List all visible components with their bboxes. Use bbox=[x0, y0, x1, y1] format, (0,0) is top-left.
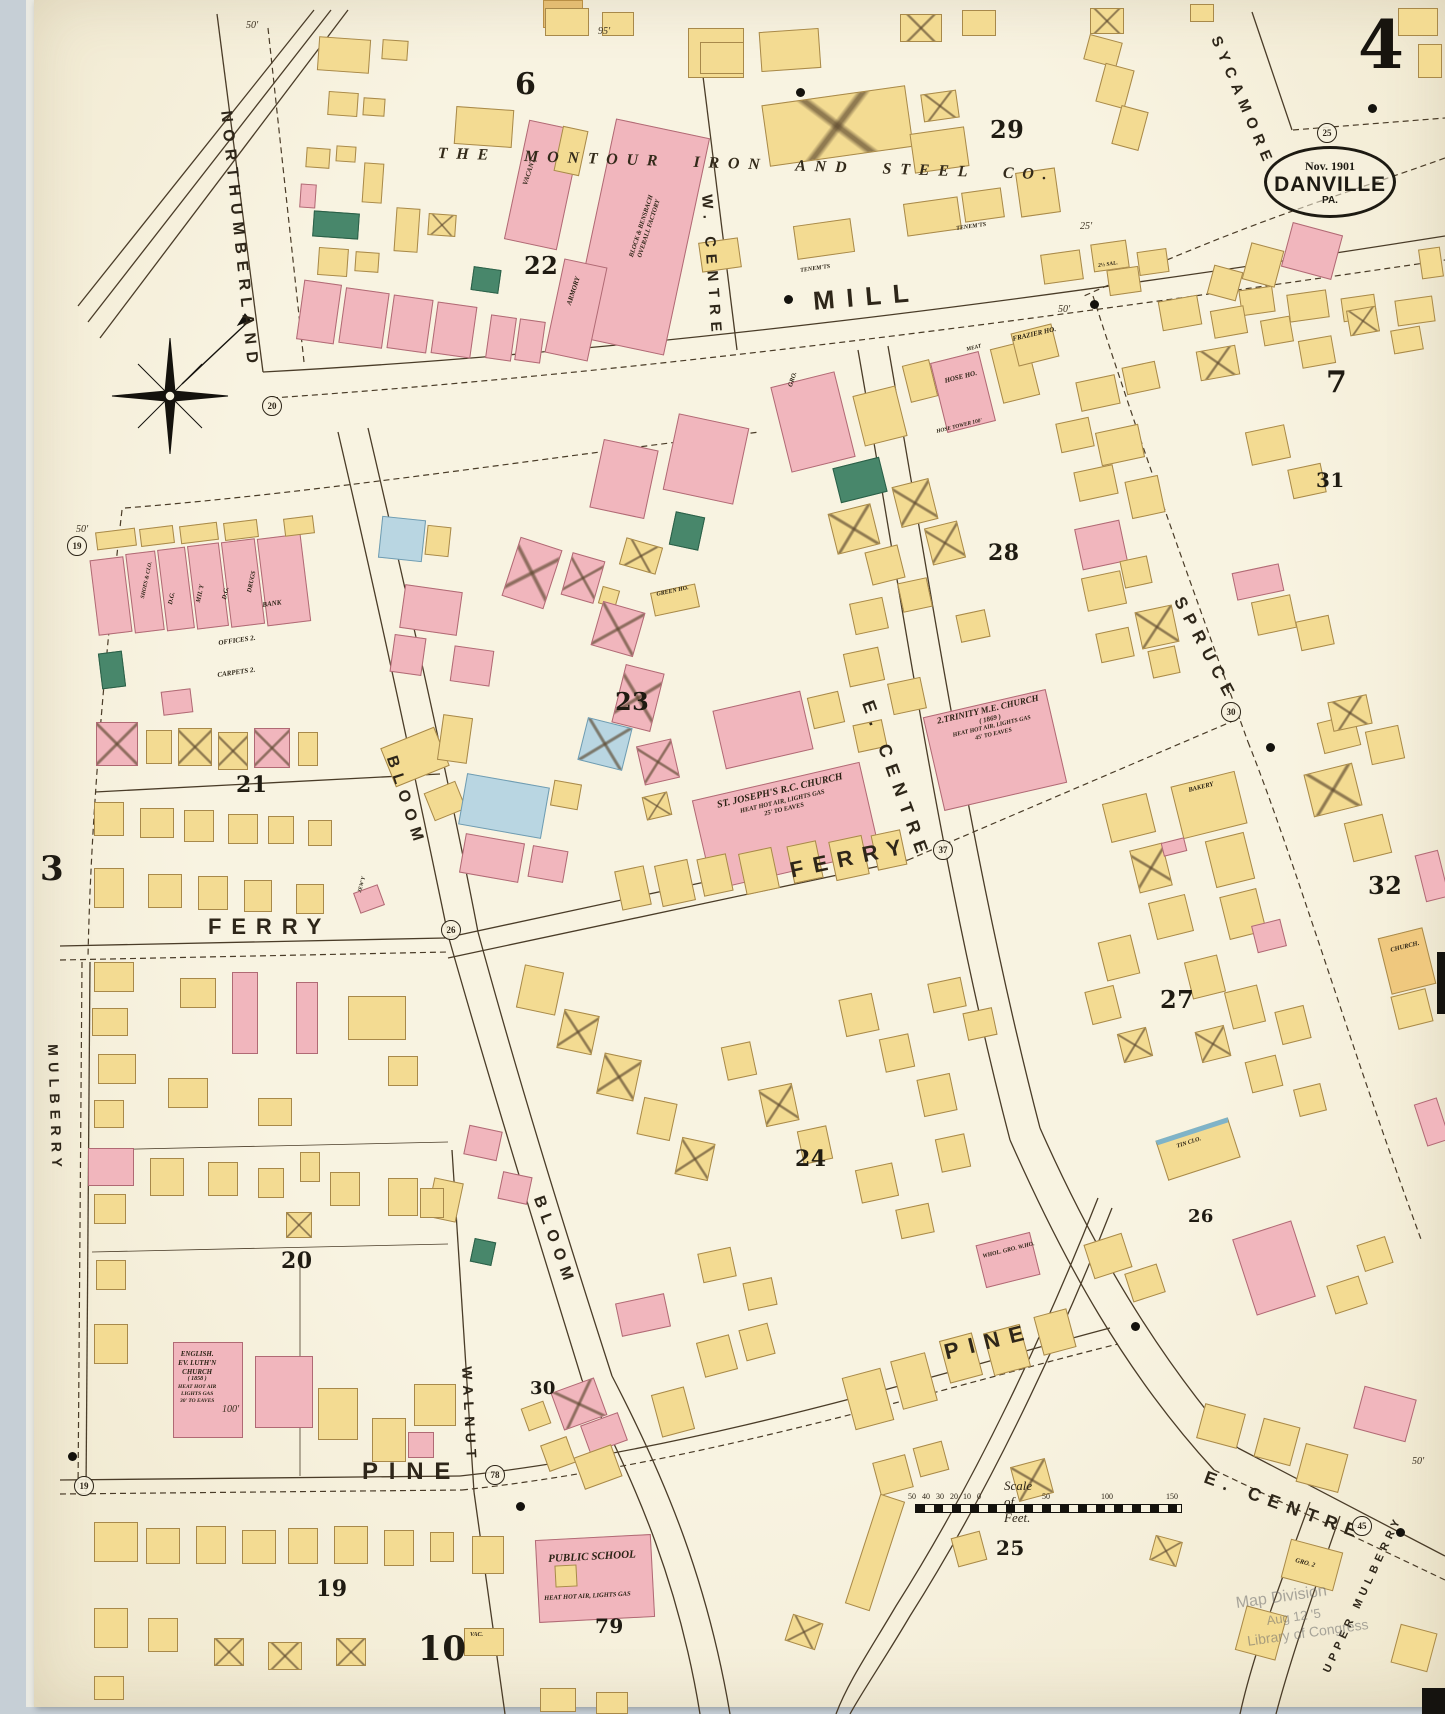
dimension-label: 50' bbox=[76, 524, 88, 535]
scale-bar bbox=[915, 1504, 1182, 1513]
building bbox=[381, 39, 408, 61]
building bbox=[1090, 8, 1124, 34]
dimension-label: 50' bbox=[1412, 1456, 1424, 1467]
building bbox=[96, 1260, 126, 1290]
building bbox=[94, 962, 134, 992]
intersection-marker: 25 bbox=[1317, 123, 1337, 143]
building bbox=[1119, 555, 1152, 588]
scale-title: Scale of Feet. bbox=[1004, 1478, 1032, 1526]
block-number-28: 28 bbox=[988, 542, 1020, 564]
building bbox=[408, 1432, 434, 1458]
building bbox=[334, 1526, 368, 1564]
compass-rose bbox=[112, 314, 250, 454]
building bbox=[168, 1078, 208, 1108]
building bbox=[1298, 335, 1336, 368]
building bbox=[146, 730, 172, 764]
dimension-label: 95' bbox=[598, 26, 610, 37]
block-number-31: 31 bbox=[1316, 470, 1345, 490]
label-line: 30' TO EAVES bbox=[178, 1398, 216, 1405]
building bbox=[424, 525, 451, 557]
building bbox=[327, 91, 359, 117]
double-hydrant-dot bbox=[1090, 300, 1099, 309]
block-number-7: 7 bbox=[1326, 368, 1347, 398]
building bbox=[94, 868, 124, 908]
building bbox=[318, 1388, 358, 1440]
street-label-pine-left: PINE bbox=[362, 1460, 461, 1484]
building bbox=[254, 728, 290, 768]
building bbox=[94, 802, 124, 836]
building bbox=[258, 1098, 292, 1126]
building bbox=[258, 1168, 284, 1198]
scan-notch bbox=[1422, 1688, 1445, 1714]
building bbox=[454, 106, 515, 148]
building bbox=[427, 213, 456, 237]
scale-tick: 30 bbox=[936, 1492, 944, 1501]
building bbox=[140, 808, 174, 838]
dimension-label: 25' bbox=[1080, 221, 1092, 232]
building bbox=[470, 266, 501, 294]
building bbox=[94, 1194, 126, 1224]
building bbox=[759, 28, 822, 72]
building bbox=[296, 982, 318, 1054]
building bbox=[535, 1534, 655, 1623]
double-hydrant-dot bbox=[1131, 1322, 1140, 1331]
building bbox=[554, 1564, 577, 1587]
scale-tick: 100 bbox=[1101, 1492, 1113, 1501]
double-hydrant-dot bbox=[1368, 104, 1377, 113]
building bbox=[312, 210, 360, 239]
building bbox=[431, 301, 478, 358]
building bbox=[184, 810, 214, 842]
block-number-79: 79 bbox=[595, 1616, 624, 1636]
building bbox=[472, 1536, 504, 1574]
building bbox=[214, 1638, 244, 1666]
landmark-vacant-10: VAC. bbox=[470, 1632, 483, 1638]
building bbox=[399, 584, 463, 636]
building bbox=[596, 1692, 628, 1714]
building bbox=[300, 1152, 320, 1182]
sanborn-map-sheet: NORTHUMBERLANDSYCAMOREW. CENTREMILLE. CE… bbox=[0, 0, 1445, 1714]
stamp-state: PA. bbox=[1322, 195, 1338, 206]
building bbox=[150, 1158, 184, 1196]
building bbox=[372, 1418, 406, 1462]
building bbox=[1365, 725, 1405, 765]
building bbox=[268, 1642, 302, 1670]
building bbox=[232, 972, 258, 1054]
building bbox=[388, 1056, 418, 1086]
building bbox=[296, 884, 324, 914]
dimension-label: 50' bbox=[246, 20, 258, 31]
building bbox=[900, 14, 942, 42]
building bbox=[362, 162, 385, 203]
building bbox=[338, 287, 389, 349]
building bbox=[450, 645, 495, 686]
dimension-label: 100' bbox=[222, 1404, 239, 1415]
building bbox=[196, 1526, 226, 1564]
double-hydrant-dot bbox=[1396, 1528, 1405, 1537]
block-number-29: 29 bbox=[990, 118, 1024, 142]
building bbox=[208, 1162, 238, 1196]
dimension-label: 50' bbox=[1058, 304, 1070, 315]
building bbox=[88, 1148, 134, 1186]
building bbox=[298, 732, 318, 766]
street-label-ferry-left: FERRY bbox=[208, 916, 331, 938]
building bbox=[1210, 305, 1248, 338]
building bbox=[497, 1171, 532, 1205]
building bbox=[362, 97, 385, 116]
building bbox=[386, 294, 433, 353]
building bbox=[1286, 289, 1330, 322]
double-hydrant-dot bbox=[784, 295, 793, 304]
building bbox=[98, 651, 126, 690]
building bbox=[336, 1638, 366, 1666]
building bbox=[161, 688, 194, 715]
intersection-marker: 78 bbox=[485, 1465, 505, 1485]
double-hydrant-dot bbox=[1266, 743, 1275, 752]
scale-tick: 40 bbox=[922, 1492, 930, 1501]
double-hydrant-dot bbox=[516, 1502, 525, 1511]
building bbox=[98, 1054, 136, 1084]
intersection-marker: 45 bbox=[1352, 1516, 1372, 1536]
double-hydrant-dot bbox=[68, 1452, 77, 1461]
building bbox=[148, 874, 182, 908]
scan-notch bbox=[1437, 952, 1445, 1014]
building bbox=[94, 1608, 128, 1648]
block-number-30: 30 bbox=[530, 1380, 556, 1398]
building bbox=[388, 1178, 418, 1216]
building bbox=[1398, 8, 1438, 36]
building bbox=[317, 36, 371, 74]
building bbox=[283, 515, 315, 537]
building bbox=[228, 814, 258, 844]
building bbox=[430, 1532, 454, 1562]
building bbox=[299, 183, 317, 208]
building bbox=[1147, 645, 1180, 678]
label-line: CHURCH bbox=[178, 1368, 216, 1377]
building bbox=[288, 1528, 318, 1564]
building bbox=[393, 207, 420, 253]
building bbox=[330, 1172, 360, 1206]
building bbox=[148, 1618, 178, 1652]
block-number-32: 32 bbox=[1368, 874, 1402, 898]
building bbox=[218, 732, 248, 770]
building bbox=[244, 880, 272, 912]
intersection-marker: 37 bbox=[933, 840, 953, 860]
sheet-number: 4 bbox=[1358, 6, 1404, 84]
title-stamp: Nov. 1901 DANVILLE PA. bbox=[1264, 146, 1396, 218]
building bbox=[268, 816, 294, 844]
building bbox=[920, 90, 960, 123]
intersection-marker: 19 bbox=[74, 1476, 94, 1496]
building bbox=[92, 1008, 128, 1036]
intersection-marker: 26 bbox=[441, 920, 461, 940]
double-hydrant-dot bbox=[796, 88, 805, 97]
block-number-26: 26 bbox=[1188, 1208, 1214, 1226]
building bbox=[1190, 4, 1214, 22]
label-line: EV. LUTH'N bbox=[178, 1359, 216, 1368]
building bbox=[378, 516, 426, 562]
block-number-3: 3 bbox=[40, 852, 64, 886]
building bbox=[146, 1528, 180, 1564]
block-number-23: 23 bbox=[615, 690, 649, 714]
building bbox=[384, 1530, 414, 1566]
block-number-27: 27 bbox=[1160, 988, 1194, 1012]
building bbox=[414, 1384, 456, 1426]
building bbox=[1418, 247, 1444, 280]
block-number-24: 24 bbox=[795, 1148, 827, 1170]
scale-tick: 50 bbox=[908, 1492, 916, 1501]
scale-tick: 10 bbox=[963, 1492, 971, 1501]
building bbox=[354, 251, 379, 273]
building bbox=[420, 1188, 444, 1218]
block-number-19: 19 bbox=[316, 1578, 348, 1600]
building bbox=[94, 1324, 128, 1364]
building bbox=[305, 147, 330, 169]
building bbox=[180, 978, 216, 1008]
building bbox=[317, 247, 349, 277]
scale-tick: 0 bbox=[977, 1492, 981, 1501]
label-line: LIGHTS GAS bbox=[178, 1391, 216, 1398]
intersection-marker: 30 bbox=[1221, 702, 1241, 722]
building bbox=[286, 1212, 312, 1238]
building bbox=[94, 1100, 124, 1128]
building bbox=[94, 1676, 124, 1700]
building bbox=[1390, 326, 1424, 355]
building bbox=[348, 996, 406, 1040]
building bbox=[1134, 604, 1179, 649]
building bbox=[962, 10, 996, 36]
label-line: ENGLISH. bbox=[178, 1350, 216, 1359]
block-number-10: 10 bbox=[418, 1632, 467, 1666]
building bbox=[1394, 295, 1435, 326]
building bbox=[96, 722, 138, 766]
block-number-20: 20 bbox=[281, 1250, 313, 1272]
scale-tick: 50 bbox=[1042, 1492, 1050, 1501]
building bbox=[1346, 306, 1380, 337]
building bbox=[198, 876, 228, 910]
building bbox=[1040, 249, 1084, 284]
stamp-city: DANVILLE bbox=[1274, 174, 1386, 195]
building bbox=[700, 42, 744, 74]
scale-tick: 150 bbox=[1166, 1492, 1178, 1501]
building bbox=[545, 8, 589, 36]
block-number-22: 22 bbox=[524, 254, 558, 278]
block-number-25: 25 bbox=[996, 1538, 1025, 1558]
scale-tick: 20 bbox=[950, 1492, 958, 1501]
building bbox=[178, 728, 212, 766]
building bbox=[335, 145, 356, 162]
building bbox=[527, 845, 568, 883]
label-line: ( 1858 ) bbox=[178, 1376, 216, 1384]
building bbox=[1418, 44, 1442, 78]
building bbox=[550, 780, 582, 810]
building bbox=[94, 1522, 138, 1562]
building bbox=[390, 634, 427, 676]
building bbox=[1136, 248, 1169, 276]
building bbox=[255, 1356, 313, 1428]
building bbox=[540, 1688, 576, 1712]
label-line: HEAT HOT AIR bbox=[178, 1384, 216, 1391]
block-number-21: 21 bbox=[236, 774, 268, 796]
block-number-6: 6 bbox=[515, 70, 536, 100]
building bbox=[242, 1530, 276, 1564]
intersection-marker: 20 bbox=[262, 396, 282, 416]
stamp-date: Nov. 1901 bbox=[1305, 159, 1355, 174]
building bbox=[308, 820, 332, 846]
intersection-marker: 19 bbox=[67, 536, 87, 556]
building bbox=[897, 577, 933, 613]
building bbox=[961, 187, 1005, 222]
landmark-lutheran-church: ENGLISH.EV. LUTH'NCHURCH( 1858 )HEAT HOT… bbox=[178, 1350, 216, 1404]
building bbox=[1260, 316, 1294, 347]
building bbox=[1106, 266, 1141, 296]
building bbox=[437, 714, 473, 764]
